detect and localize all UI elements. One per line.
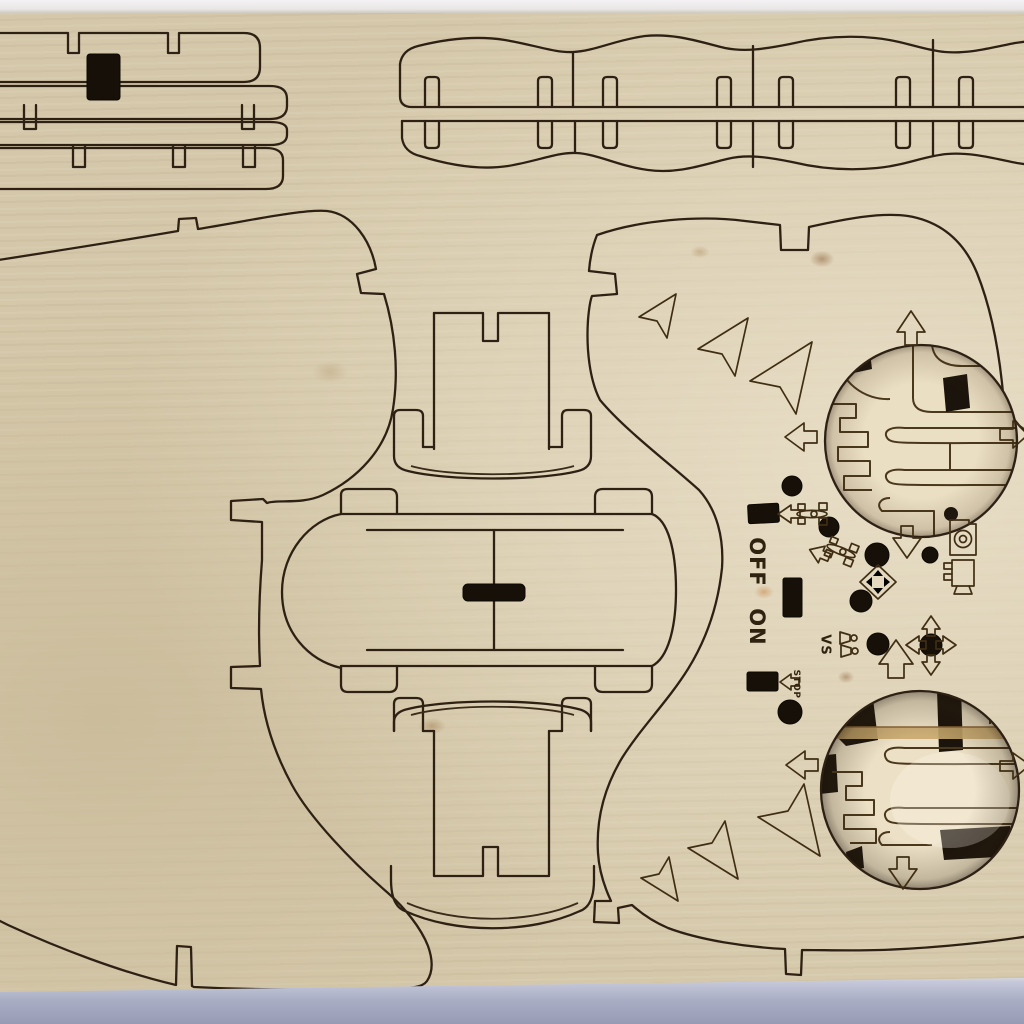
stop-slot-hole (747, 672, 778, 691)
arrow-left-icon (785, 423, 817, 451)
versus-players-icon (840, 632, 858, 657)
circular-cutout-bottom (818, 688, 1024, 889)
cut-pattern (0, 0, 1024, 1024)
arrow-down-icon (922, 655, 940, 675)
sprue-strips-top-left (0, 33, 287, 189)
label-power-off: OFF (745, 537, 769, 587)
projector-icon (944, 560, 974, 594)
center-slot-hole (463, 584, 525, 601)
arrow-left-icon (786, 751, 818, 779)
car-top-view-icon (823, 535, 859, 567)
arrow-up-icon (897, 311, 925, 345)
rect-cutout-hole (87, 54, 120, 100)
car1-slot-hole (748, 503, 780, 524)
circular-cutout-top (825, 344, 1020, 537)
label-stop: STOP (791, 670, 801, 699)
chevron-triangle-icons-bottom (641, 784, 820, 901)
photo-laser-cut-plywood-sheet: OFF ON VS STOP (0, 0, 1024, 1024)
arrow-up-icon (922, 616, 940, 636)
power-switch-slot (783, 578, 802, 617)
label-power-on: ON (745, 608, 769, 645)
left-panel-outline (0, 211, 432, 990)
center-pieces (282, 313, 676, 928)
label-versus: VS (818, 634, 833, 655)
sprue-strips-top-right (400, 35, 1024, 171)
chevron-triangle-icons-top (639, 294, 812, 414)
